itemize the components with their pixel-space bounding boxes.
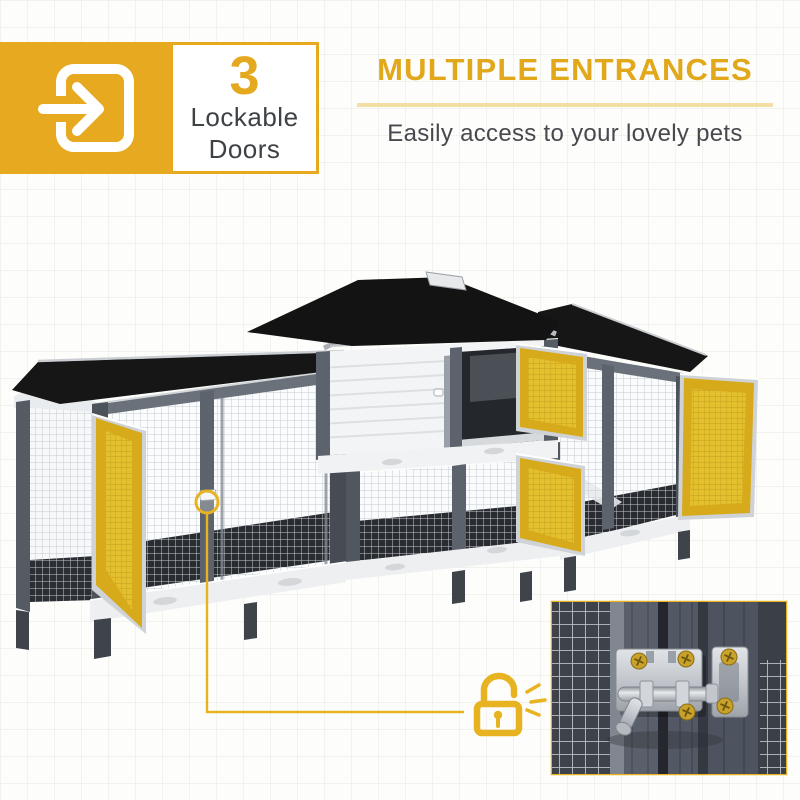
inset-wire-mesh-left bbox=[552, 602, 610, 774]
door-highlight-right bbox=[678, 374, 758, 520]
door-highlight-upper-center bbox=[516, 344, 587, 441]
open-padlock-icon bbox=[477, 676, 519, 733]
latch-circle-marker bbox=[196, 491, 218, 513]
left-run bbox=[12, 351, 354, 659]
door-highlight-lower-center bbox=[516, 454, 585, 556]
click-lines-icon bbox=[527, 685, 545, 715]
lock-detail-inset bbox=[552, 602, 786, 774]
inset-wire-mesh-right bbox=[760, 660, 786, 774]
main-roof bbox=[247, 277, 560, 346]
sliding-door-latch bbox=[434, 389, 443, 396]
product-photo: Pawhut bbox=[0, 0, 800, 800]
